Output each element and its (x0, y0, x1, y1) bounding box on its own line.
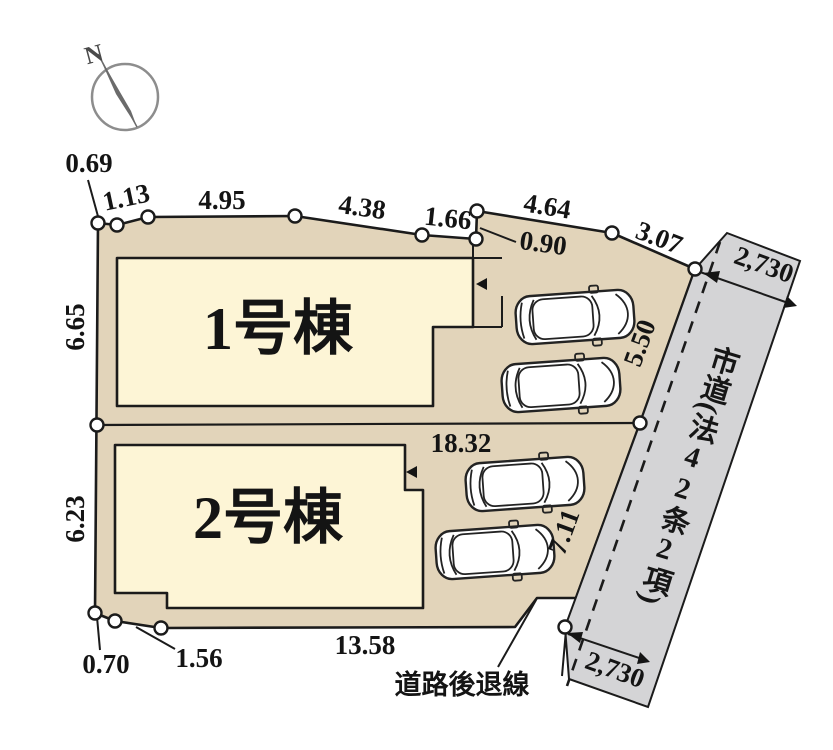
dim-label: 4.95 (198, 185, 245, 215)
north-label: N (82, 39, 106, 70)
dim-label: 6.23 (60, 495, 90, 542)
compass-circle-icon (92, 64, 158, 130)
dim-label: 0.70 (82, 649, 129, 679)
building-1-label: 1号棟 (203, 296, 354, 362)
dim-label: 0.69 (65, 148, 112, 178)
dim-label: 18.32 (431, 428, 492, 458)
site-plan: N 1号棟 2号棟 0.69 1.13 4.95 4.38 1.66 0.90 … (0, 0, 833, 750)
dim-label: 13.58 (335, 630, 396, 660)
building-2-label: 2号棟 (193, 485, 344, 551)
setback-label: 道路後退線 (395, 669, 530, 700)
dim-label: 1.66 (423, 201, 473, 236)
dim-label: 4.38 (337, 189, 388, 225)
dim-label: 6.65 (60, 303, 90, 350)
compass: N (82, 39, 158, 130)
dim-label: 1.56 (175, 643, 222, 673)
